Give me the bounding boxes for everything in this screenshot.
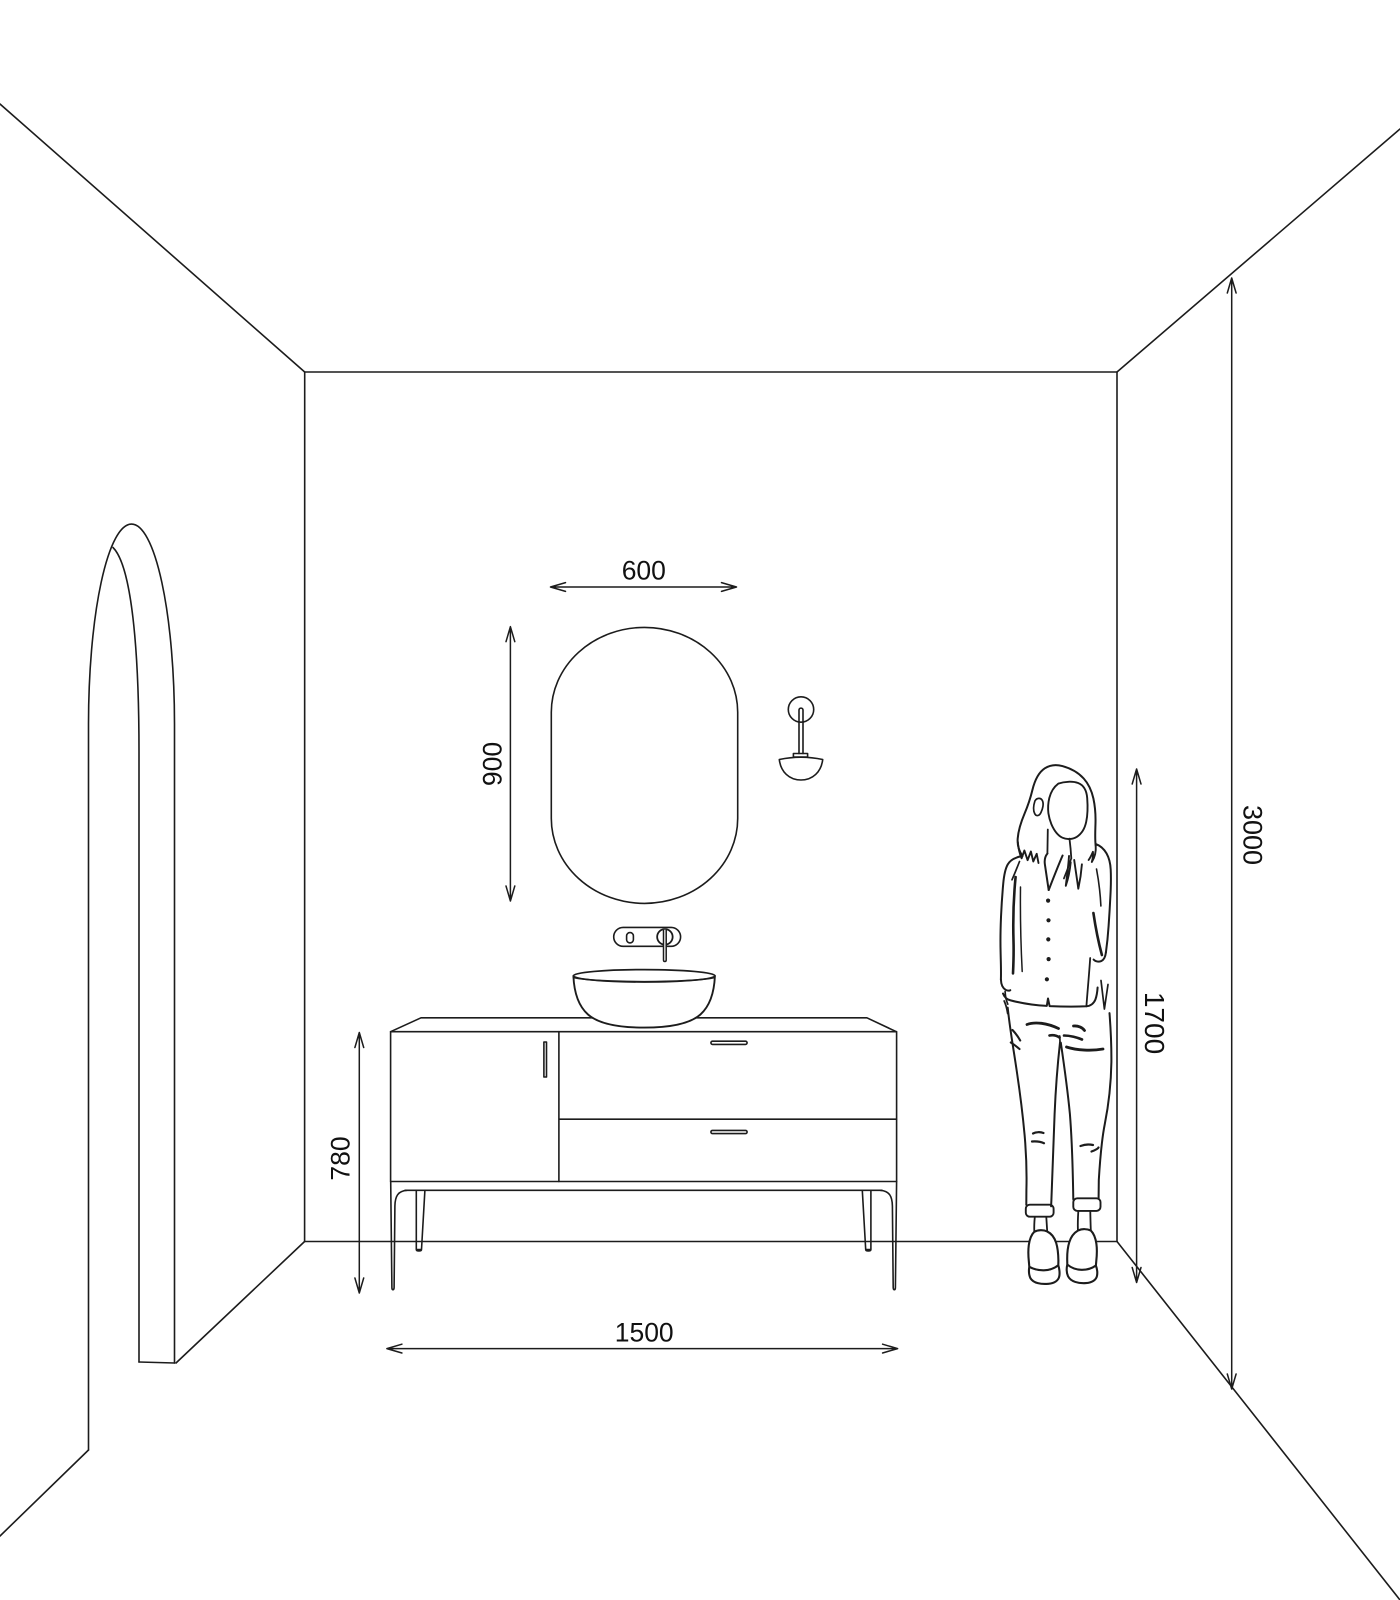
svg-text:900: 900 <box>478 742 508 786</box>
svg-text:3000: 3000 <box>1238 805 1268 865</box>
svg-text:1500: 1500 <box>615 1318 674 1348</box>
svg-text:600: 600 <box>622 556 666 586</box>
svg-text:1700: 1700 <box>1139 992 1170 1054</box>
svg-text:780: 780 <box>326 1136 356 1180</box>
